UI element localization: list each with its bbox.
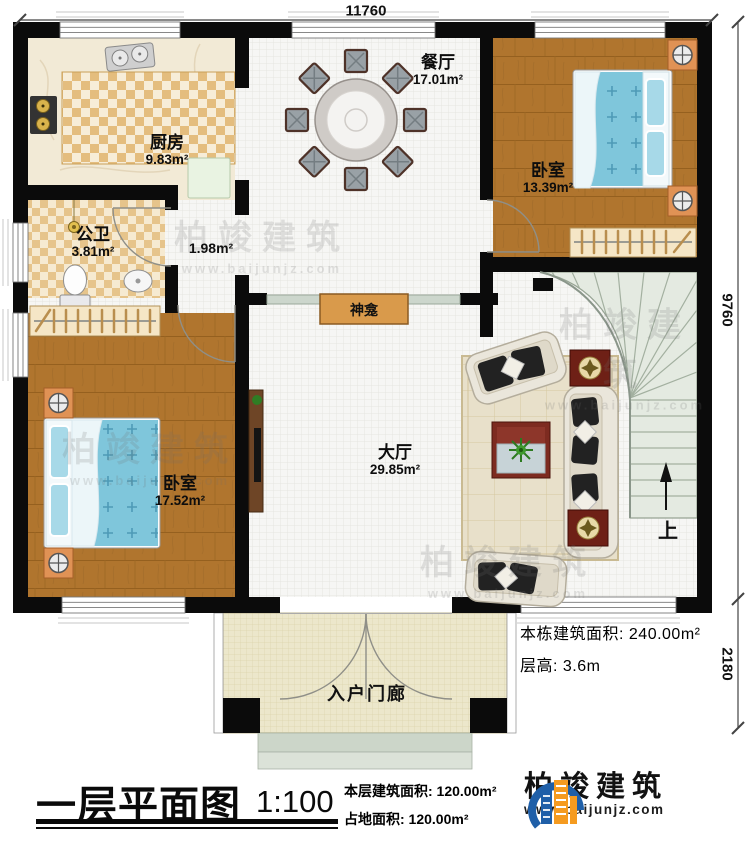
kitchen-area: 9.83m² <box>146 152 189 167</box>
title-underline-thick <box>36 819 338 824</box>
stairs-up-label: 上 <box>658 515 678 544</box>
kitchen-fridge <box>188 158 230 198</box>
room-label-dining: 餐厅 17.01m² <box>413 53 463 87</box>
dining-name: 餐厅 <box>413 53 463 72</box>
living-hall-area: 29.85m² <box>370 462 420 477</box>
dimension-top: 11760 <box>346 3 387 20</box>
shrine-label: 神龛 <box>350 300 378 320</box>
room-label-kitchen: 厨房 9.83m² <box>146 133 189 167</box>
dimension-right-porch: 2180 <box>719 647 736 680</box>
kitchen-sink <box>105 43 155 72</box>
kitchen-stove <box>30 96 57 134</box>
corridor-area-label: 1.98m² <box>189 240 233 256</box>
note-building-total-area: 本栋建筑面积: 240.00m² <box>520 620 701 644</box>
plan-scale: 1:100 <box>256 784 334 820</box>
room-label-living-hall: 大厅 29.85m² <box>370 443 420 477</box>
room-label-bedroom-upper: 卧室 13.39m² <box>523 161 573 195</box>
bedroom-lower-name: 卧室 <box>155 474 205 493</box>
dining-table-set <box>286 50 426 190</box>
title-underline-thin <box>36 827 338 829</box>
bathroom-area: 3.81m² <box>72 244 115 259</box>
bed-upper-bedroom <box>573 70 672 188</box>
bedroom-lower-area: 17.52m² <box>155 493 205 508</box>
bedroom-upper-name: 卧室 <box>523 161 573 180</box>
tv-cabinet <box>249 390 263 512</box>
dimension-right-main: 9760 <box>719 293 736 326</box>
dining-area: 17.01m² <box>413 72 463 87</box>
closet-lower-bedroom <box>30 306 160 336</box>
room-label-bedroom-lower: 卧室 17.52m² <box>155 474 205 508</box>
footer-floor-area: 本层建筑面积: 120.00m² <box>344 781 496 801</box>
floor-plan-drawing <box>0 0 750 844</box>
living-hall-name: 大厅 <box>370 443 420 462</box>
floor-plan-page: 柏竣建筑 www.baijunjz.com 柏竣建筑 www.baijunjz.… <box>0 0 750 844</box>
note-floor-height: 层高: 3.6m <box>520 652 600 676</box>
footer-site-area: 占地面积: 120.00m² <box>344 809 468 829</box>
bed-lower-bedroom <box>44 418 160 548</box>
room-label-bathroom: 公卫 3.81m² <box>72 225 115 259</box>
brand-logo: 柏竣建筑 www.baijunjz.com <box>524 772 668 817</box>
entry-porch-label: 入户门廊 <box>327 680 407 706</box>
closet-upper-bedroom <box>570 228 696 257</box>
bathroom-name: 公卫 <box>72 225 115 244</box>
bedroom-upper-area: 13.39m² <box>523 180 573 195</box>
brand-logo-icon <box>524 772 586 834</box>
kitchen-name: 厨房 <box>146 133 189 152</box>
